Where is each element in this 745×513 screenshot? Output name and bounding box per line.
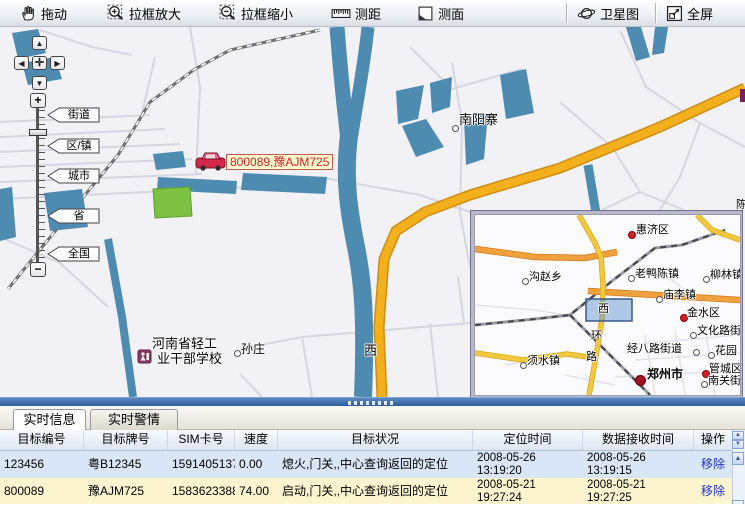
cell-sim: 15836233884 <box>168 478 235 505</box>
inset-place: 庙李镇 <box>663 289 696 301</box>
zoom-out-box-button[interactable]: 拉框缩小 <box>213 2 299 25</box>
place-dot <box>452 125 459 132</box>
satellite-view-label: 卫星图 <box>600 4 639 23</box>
inset-place: 花园 <box>715 345 737 357</box>
col-header[interactable]: 数据接收时间 <box>583 430 694 450</box>
col-header[interactable]: SIM卡号 <box>168 430 235 450</box>
target-table: 目标编号 目标牌号 SIM卡号 速度 目标状况 定位时间 数据接收时间 操作 1… <box>0 430 732 505</box>
cell-target-id: 123456 <box>0 451 84 478</box>
table-row[interactable]: 800089 豫AJM725 15836233884 74.00 启动,门关,,… <box>0 478 732 505</box>
road-char: 西 <box>598 303 609 315</box>
place-label: 孙庄 <box>241 343 265 356</box>
cell-status: 启动,门关,,中心查询返回的定位 <box>278 478 473 505</box>
drag-button-label: 拖动 <box>41 4 67 23</box>
zoom-in-box-label: 拉框放大 <box>129 4 181 23</box>
fullscreen-label: 全屏 <box>687 4 713 23</box>
place-dot <box>234 350 241 357</box>
zoom-in-box-icon <box>107 4 125 22</box>
scroll-spin-up-button[interactable]: ▲ <box>732 431 744 440</box>
overview-map[interactable]: 惠济区 沟赵乡 老鸭陈镇 柳林镇 庙李镇 金水区 文化路街 经八路街道 花园 须… <box>474 214 741 396</box>
scroll-up-button[interactable]: ▲ <box>732 452 744 465</box>
fullscreen-button[interactable]: 全屏 <box>660 2 719 25</box>
hand-icon <box>20 5 37 22</box>
map-toolbar: 拖动 拉框放大 拉框缩小 测距 测面 卫星图 全屏 <box>0 0 745 27</box>
ruler-icon <box>331 5 351 21</box>
overview-map-frame: 惠济区 沟赵乡 老鸭陈镇 柳林镇 庙李镇 金水区 文化路街 经八路街道 花园 须… <box>470 210 743 397</box>
place-dot <box>690 332 697 339</box>
drag-button[interactable]: 拖动 <box>14 2 73 25</box>
col-header[interactable]: 定位时间 <box>473 430 583 450</box>
col-header[interactable]: 目标状况 <box>278 430 473 450</box>
toolbar-separator <box>566 3 567 23</box>
inset-place: 金水区 <box>687 307 720 319</box>
remove-link[interactable]: 移除 <box>694 451 732 478</box>
inset-place: 柳林镇 <box>710 269 741 281</box>
col-header[interactable]: 操作 <box>694 430 732 450</box>
inset-place: 管城区 <box>709 363 741 375</box>
satellite-view-button[interactable]: 卫星图 <box>571 2 645 25</box>
cell-receive-time: 2008-05-2119:27:25 <box>583 478 694 505</box>
cell-plate: 粤B12345 <box>84 451 168 478</box>
road-char: 路 <box>586 351 597 363</box>
gps-monitoring-window: 拖动 拉框放大 拉框缩小 测距 测面 卫星图 全屏 <box>0 0 745 513</box>
info-tabstrip: 实时信息 实时警情 <box>0 406 745 430</box>
measure-area-button[interactable]: 测面 <box>411 2 470 25</box>
zoom-out-button[interactable]: − <box>30 262 46 277</box>
vehicle-plate-label[interactable]: 800089,豫AJM725 <box>226 154 333 170</box>
scroll-spin-down-button[interactable]: ▼ <box>732 440 744 449</box>
zoom-out-box-label: 拉框缩小 <box>241 4 293 23</box>
zoom-in-box-button[interactable]: 拉框放大 <box>101 2 187 25</box>
view-extent-rect <box>586 299 632 321</box>
cell-speed: 74.00 <box>235 478 278 505</box>
pan-left-button[interactable]: ◀ <box>14 56 29 70</box>
cell-sim: 15914051378 <box>168 451 235 478</box>
city-dot <box>635 375 646 386</box>
zoom-level-nation[interactable]: 全国 <box>47 246 101 262</box>
zoom-out-box-icon <box>219 4 237 22</box>
col-header[interactable]: 速度 <box>235 430 278 450</box>
fullscreen-icon <box>666 5 683 22</box>
cell-status: 熄火,门关,,中心查询返回的定位 <box>278 451 473 478</box>
inset-place: 沟赵乡 <box>529 271 562 283</box>
main-map[interactable]: 南阳寨 孙庄 河南省轻工 业干部学校 西 陈 800089,豫AJM725 ▲ … <box>0 27 745 397</box>
table-row[interactable]: 123456 粤B12345 15914051378 0.00 熄火,门关,,中… <box>0 451 732 478</box>
cell-locate-time: 2008-05-2613:19:20 <box>473 451 583 478</box>
inset-place: 南关街 <box>708 375 741 387</box>
place-dot <box>703 276 710 283</box>
tab-realtime-alert[interactable]: 实时警情 <box>90 409 178 430</box>
cell-target-id: 800089 <box>0 478 84 505</box>
panel-background <box>0 504 745 513</box>
cell-locate-time: 2008-05-2119:27:24 <box>473 478 583 505</box>
horizontal-splitter[interactable] <box>0 397 745 406</box>
zoom-level-street[interactable]: 街道 <box>47 107 101 123</box>
place-dot <box>520 362 527 369</box>
zoom-slider-handle[interactable] <box>29 129 47 136</box>
inset-place: 郑州市 <box>647 368 683 380</box>
zoom-level-district[interactable]: 区/镇 <box>47 138 101 154</box>
toolbar-separator <box>655 3 656 23</box>
pan-up-button[interactable]: ▲ <box>32 36 47 50</box>
inset-place: 惠济区 <box>636 224 669 236</box>
pan-center-button[interactable]: ✛ <box>32 56 47 70</box>
road-label-west: 西 <box>364 344 377 357</box>
school-icon <box>138 350 151 363</box>
cell-speed: 0.00 <box>235 451 278 478</box>
place-dot <box>701 381 708 388</box>
table-header-row: 目标编号 目标牌号 SIM卡号 速度 目标状况 定位时间 数据接收时间 操作 <box>0 430 732 451</box>
place-dot <box>708 352 715 359</box>
measure-area-label: 测面 <box>438 4 464 23</box>
col-header[interactable]: 目标牌号 <box>84 430 168 450</box>
satellite-icon <box>577 5 596 22</box>
place-dot <box>693 349 700 356</box>
district-dot <box>628 231 636 239</box>
road-char: 环 <box>591 330 602 342</box>
place-label: 河南省轻工 <box>152 337 217 350</box>
place-dot <box>628 275 635 282</box>
pan-right-button[interactable]: ▶ <box>50 56 65 70</box>
measure-distance-label: 测距 <box>355 4 381 23</box>
inset-place: 文化路街 <box>697 325 741 337</box>
place-dot <box>656 296 663 303</box>
place-dot <box>522 278 529 285</box>
inset-place: 须水镇 <box>527 355 560 367</box>
place-label: 业干部学校 <box>157 352 222 365</box>
cell-receive-time: 2008-05-2613:19:15 <box>583 451 694 478</box>
measure-distance-button[interactable]: 测距 <box>325 2 387 25</box>
zoom-level-province[interactable]: 省 <box>47 208 101 224</box>
place-label: 南阳寨 <box>459 113 498 126</box>
inset-place: 经八路街道 <box>627 343 682 355</box>
zoom-in-button[interactable]: + <box>30 93 46 108</box>
zoom-level-city[interactable]: 城市 <box>47 168 101 184</box>
splitter-grip[interactable] <box>348 401 396 405</box>
pan-down-button[interactable]: ▼ <box>32 76 47 90</box>
inset-place: 老鸭陈镇 <box>635 268 679 280</box>
col-header[interactable]: 目标编号 <box>0 430 84 450</box>
tab-realtime-info[interactable]: 实时信息 <box>13 409 86 430</box>
measure-area-icon <box>417 5 434 22</box>
cell-plate: 豫AJM725 <box>84 478 168 505</box>
remove-link[interactable]: 移除 <box>694 478 732 505</box>
